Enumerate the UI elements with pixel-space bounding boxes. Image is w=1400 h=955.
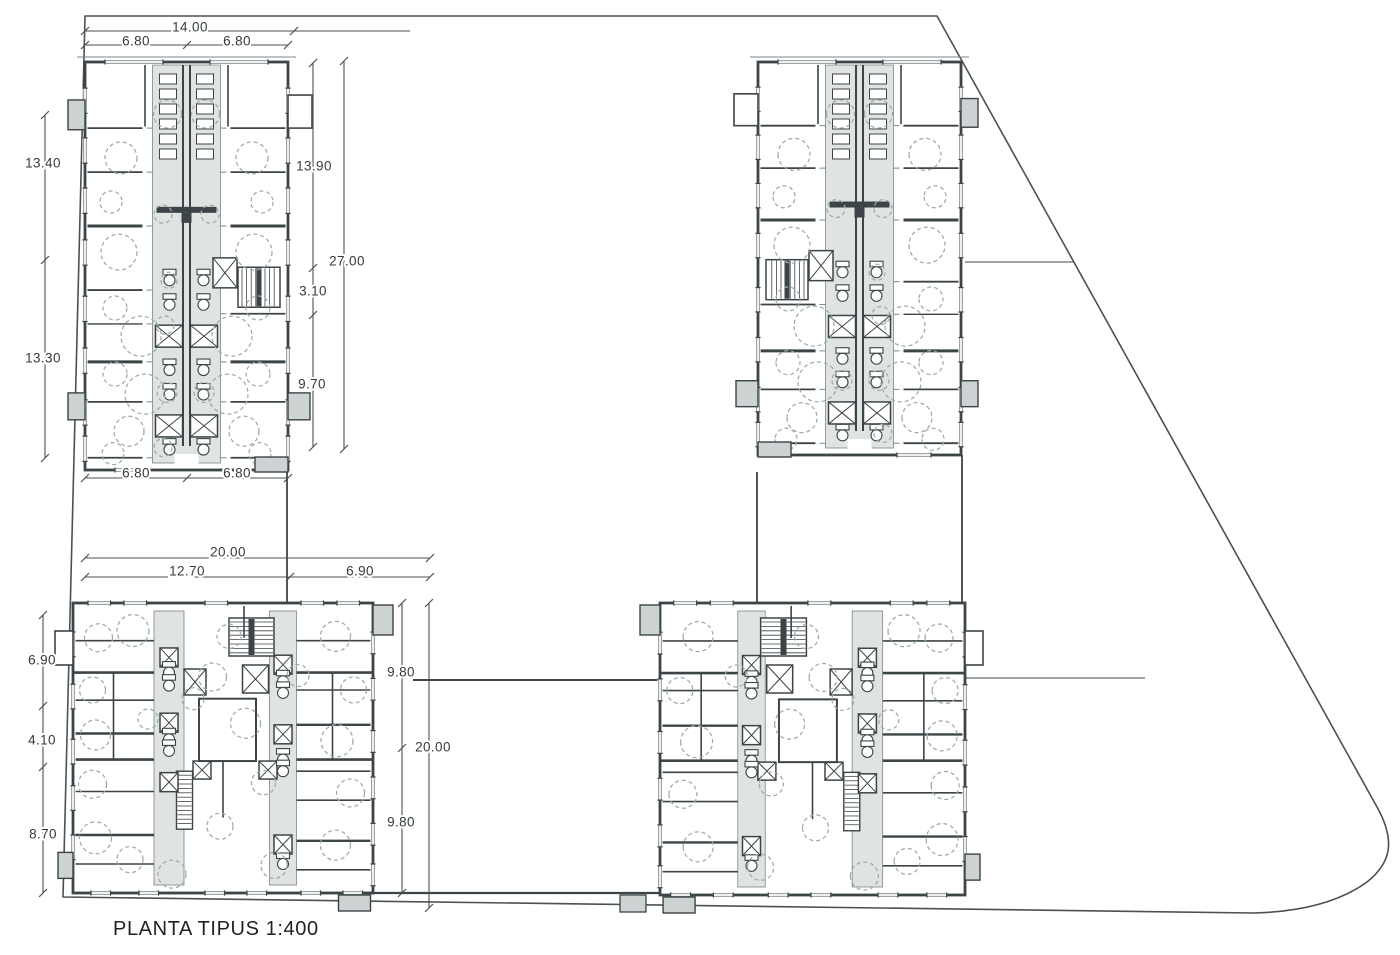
dim-label: 8.70	[29, 827, 57, 842]
dim-label: 4.10	[28, 733, 56, 748]
dim-label: 6.80	[223, 34, 251, 49]
dim-label: 6.90	[28, 653, 56, 668]
block-tower-ne	[734, 57, 978, 458]
dimension-west-slab: 6.904.108.70	[28, 611, 57, 897]
dim-label: 9.70	[298, 377, 326, 392]
block-tower-nw	[68, 57, 312, 473]
dim-label: 13.30	[25, 351, 61, 366]
dim-label: 13.40	[25, 156, 61, 171]
dim-label: 20.00	[415, 740, 451, 755]
dim-label: 27.00	[329, 254, 365, 269]
dim-label: 6.90	[346, 564, 374, 579]
dimension-top-halves: 6.806.80	[81, 34, 292, 50]
drawing-title: PLANTA TIPUS 1:400	[113, 918, 319, 941]
dim-label: 9.80	[387, 665, 415, 680]
floor-plan-canvas: 14.006.806.8013.4013.3013.903.109.7027.0…	[0, 0, 1400, 950]
dim-label: 6.80	[122, 34, 150, 49]
dimension-mid-slab-total: 20.00	[415, 599, 451, 912]
dimension-slab-width-parts: 12.706.90	[81, 564, 434, 582]
dim-label: 9.80	[387, 815, 415, 830]
dim-label: 6.80	[223, 466, 251, 481]
dimension-west-tower: 13.4013.30	[25, 111, 61, 462]
dim-label: 14.00	[172, 20, 208, 35]
dimension-slab-width-total: 20.00	[81, 545, 434, 563]
dim-label: 20.00	[210, 545, 246, 560]
dimension-mid-slab-parts: 9.809.80	[387, 599, 415, 897]
block-slab-sw	[55, 600, 393, 911]
floorplan-drawing: 14.006.806.8013.4013.3013.903.109.7027.0…	[0, 0, 1400, 950]
block-slab-se	[640, 600, 983, 913]
dim-label: 12.70	[169, 564, 205, 579]
dimension-east-tower-total: 27.00	[329, 57, 365, 453]
dim-label: 6.80	[122, 466, 150, 481]
dim-label: 13.90	[296, 159, 332, 174]
dim-label: 3.10	[299, 284, 327, 299]
